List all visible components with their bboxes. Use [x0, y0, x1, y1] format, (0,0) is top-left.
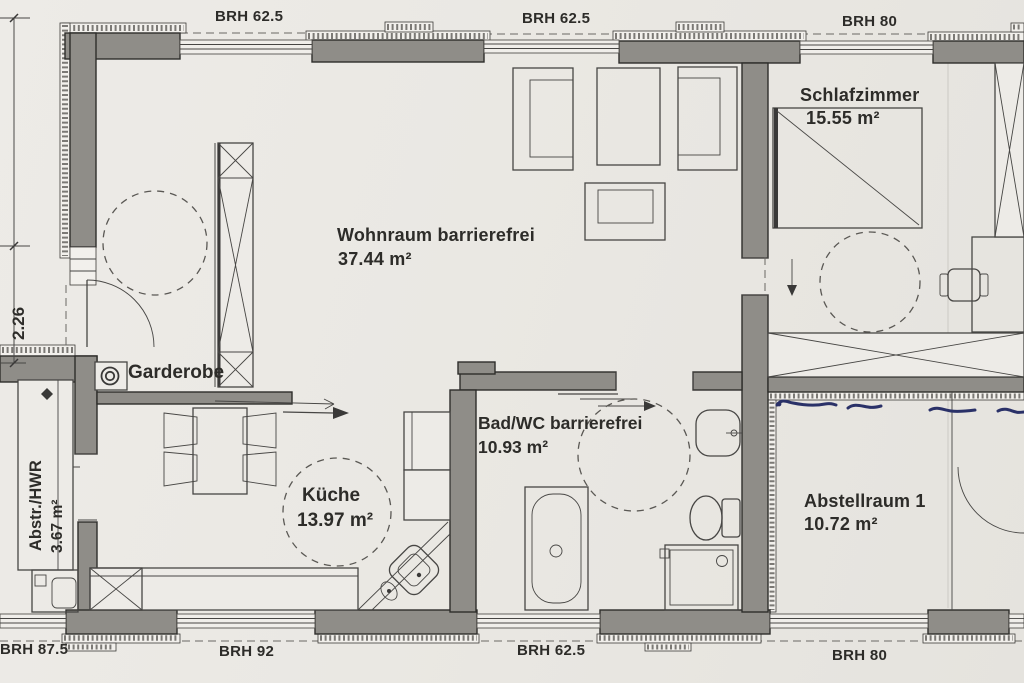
- wardrobe-right: [995, 63, 1024, 237]
- label-brh-bottom-3: BRH 62.5: [517, 643, 585, 659]
- floorplan-scan: BRH 62.5 BRH 62.5 BRH 80 Wohnraum barrie…: [0, 0, 1024, 683]
- dining-set: [164, 408, 276, 494]
- label-wohnraum-area: 37.44 m²: [338, 250, 412, 269]
- bathtub: [525, 487, 588, 610]
- shower: [660, 545, 738, 610]
- wardrobe-bottom: [768, 333, 1024, 377]
- label-brh-bottom-4: BRH 80: [832, 648, 887, 664]
- label-brh-top-center: BRH 62.5: [522, 11, 590, 27]
- label-hwr-name: Abstr./HWR: [28, 460, 45, 551]
- kitchen-counters: [90, 412, 450, 610]
- label-garderobe: Garderobe: [128, 363, 224, 383]
- label-brh-bottom-1: BRH 87.5: [0, 642, 68, 658]
- label-hwr-area: 3.67 m²: [50, 500, 66, 553]
- label-dimension-left: 2.26: [10, 307, 28, 340]
- livingroom-furniture: [513, 67, 737, 240]
- hall-cabinet: [215, 143, 253, 387]
- toilet: [690, 496, 740, 540]
- storage-door: [952, 392, 1024, 610]
- label-wohnraum-name: Wohnraum barrierefrei: [337, 226, 535, 245]
- washbasin: [696, 410, 742, 456]
- label-brh-bottom-2: BRH 92: [219, 644, 274, 660]
- label-brh-top-right: BRH 80: [842, 14, 897, 30]
- label-abstellraum-name: Abstellraum 1: [804, 492, 926, 511]
- label-kueche-name: Küche: [302, 486, 360, 506]
- label-brh-top-left: BRH 62.5: [215, 9, 283, 25]
- bedroom-door: [742, 257, 797, 296]
- entrance-door: [66, 247, 154, 347]
- desk-and-chair: [940, 237, 1024, 332]
- label-kueche-area: 13.97 m²: [297, 511, 373, 531]
- label-abstellraum-area: 10.72 m²: [804, 515, 878, 534]
- pen-annotations: [777, 401, 1024, 412]
- label-schlafzimmer-area: 15.55 m²: [806, 109, 880, 128]
- label-schlafzimmer-name: Schlafzimmer: [800, 86, 919, 105]
- label-bad-name: Bad/WC barrierefrei: [478, 414, 642, 432]
- garderobe-symbol: [95, 362, 127, 390]
- label-bad-area: 10.93 m²: [478, 438, 548, 456]
